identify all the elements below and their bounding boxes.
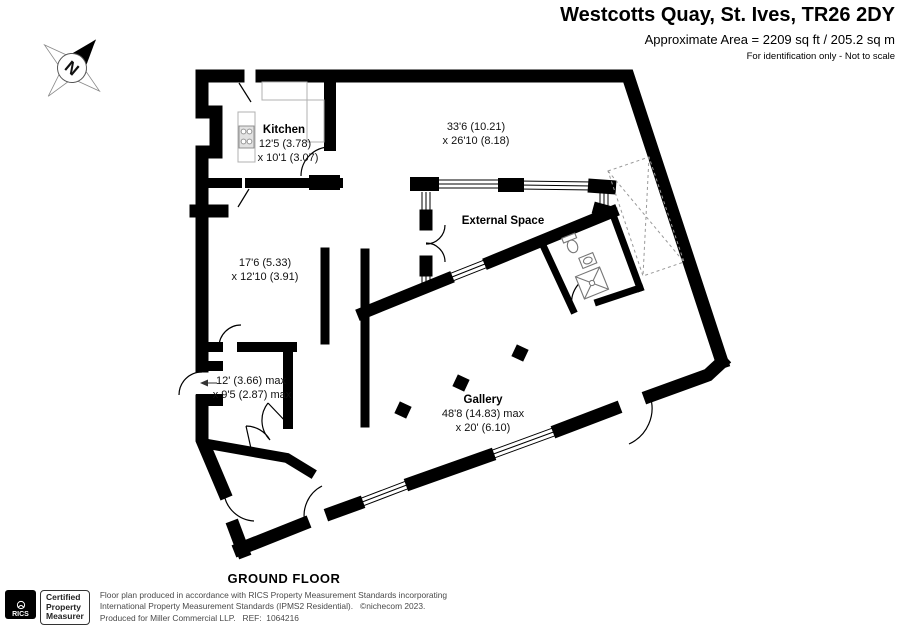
room-dims-gallery-2: x 20' (6.10) [456,422,511,434]
header: Westcotts Quay, St. Ives, TR26 2DY Appro… [560,4,895,62]
room-dims-lower-2: x 9'5 (2.87) max [213,389,292,401]
identification-note: For identification only - Not to scale [560,51,895,62]
kitchen-bottom-door-leaf [238,189,249,207]
disclaimer-line-2: International Property Measurement Stand… [100,601,447,613]
kitchen-counters [238,82,324,162]
room-dims-kitchen-1: 12'5 (3.78) [259,138,311,150]
sink-icon [579,253,597,269]
room-dims-middle-2: x 12'10 (3.91) [232,271,299,283]
disclaimer-line-3: Produced for Miller Commercial LLP. REF:… [100,613,447,625]
room-dims-upper-1: 33'6 (10.21) [447,121,505,133]
room-dims-lower-1: 12' (3.66) max [216,375,286,387]
hob-icon [239,126,254,148]
room-dims-upper-2: x 26'10 (8.18) [443,135,510,147]
room-labels: Kitchen 12'5 (3.78) x 10'1 (3.07) 33'6 (… [213,121,545,434]
compass-rose: N [21,17,124,120]
door-swings [179,83,652,523]
disclaimer-text: Floor plan produced in accordance with R… [100,590,447,625]
bathroom-fixtures [562,233,609,299]
disclaimer-line-1: Floor plan produced in accordance with R… [100,590,447,602]
room-dims-kitchen-2: x 10'1 (3.07) [258,152,319,164]
floor-label: GROUND FLOOR [228,571,341,586]
shower-icon [575,267,608,299]
rics-crest-icon [14,600,28,610]
room-dims-middle-1: 17'6 (5.33) [239,257,291,269]
approximate-area: Approximate Area = 2209 sq ft / 205.2 sq… [560,32,895,47]
floor-plan-drawing: N [0,0,900,628]
left-exterior-door-arc [179,372,202,395]
kitchen-top-door-leaf [239,83,251,102]
rics-logo: RICS [5,590,36,619]
rics-logo-text: RICS [12,611,29,618]
floorplan-page: Westcotts Quay, St. Ives, TR26 2DY Appro… [0,0,900,628]
badge-line-3: Measurer [46,612,84,621]
room-label-gallery: Gallery [464,394,504,406]
certified-measurer-badge: Certified Property Measurer [40,590,90,625]
room-label-external-space: External Space [462,215,544,227]
double-door-arcs [246,403,288,453]
room-dims-gallery-1: 48'8 (14.83) max [442,408,525,420]
page-title: Westcotts Quay, St. Ives, TR26 2DY [560,4,895,27]
footer: RICS Certified Property Measurer Floor p… [5,590,447,625]
gallery-left-door-arc [224,494,254,521]
dimension-arrow [200,380,217,387]
room-label-kitchen: Kitchen [263,124,305,136]
